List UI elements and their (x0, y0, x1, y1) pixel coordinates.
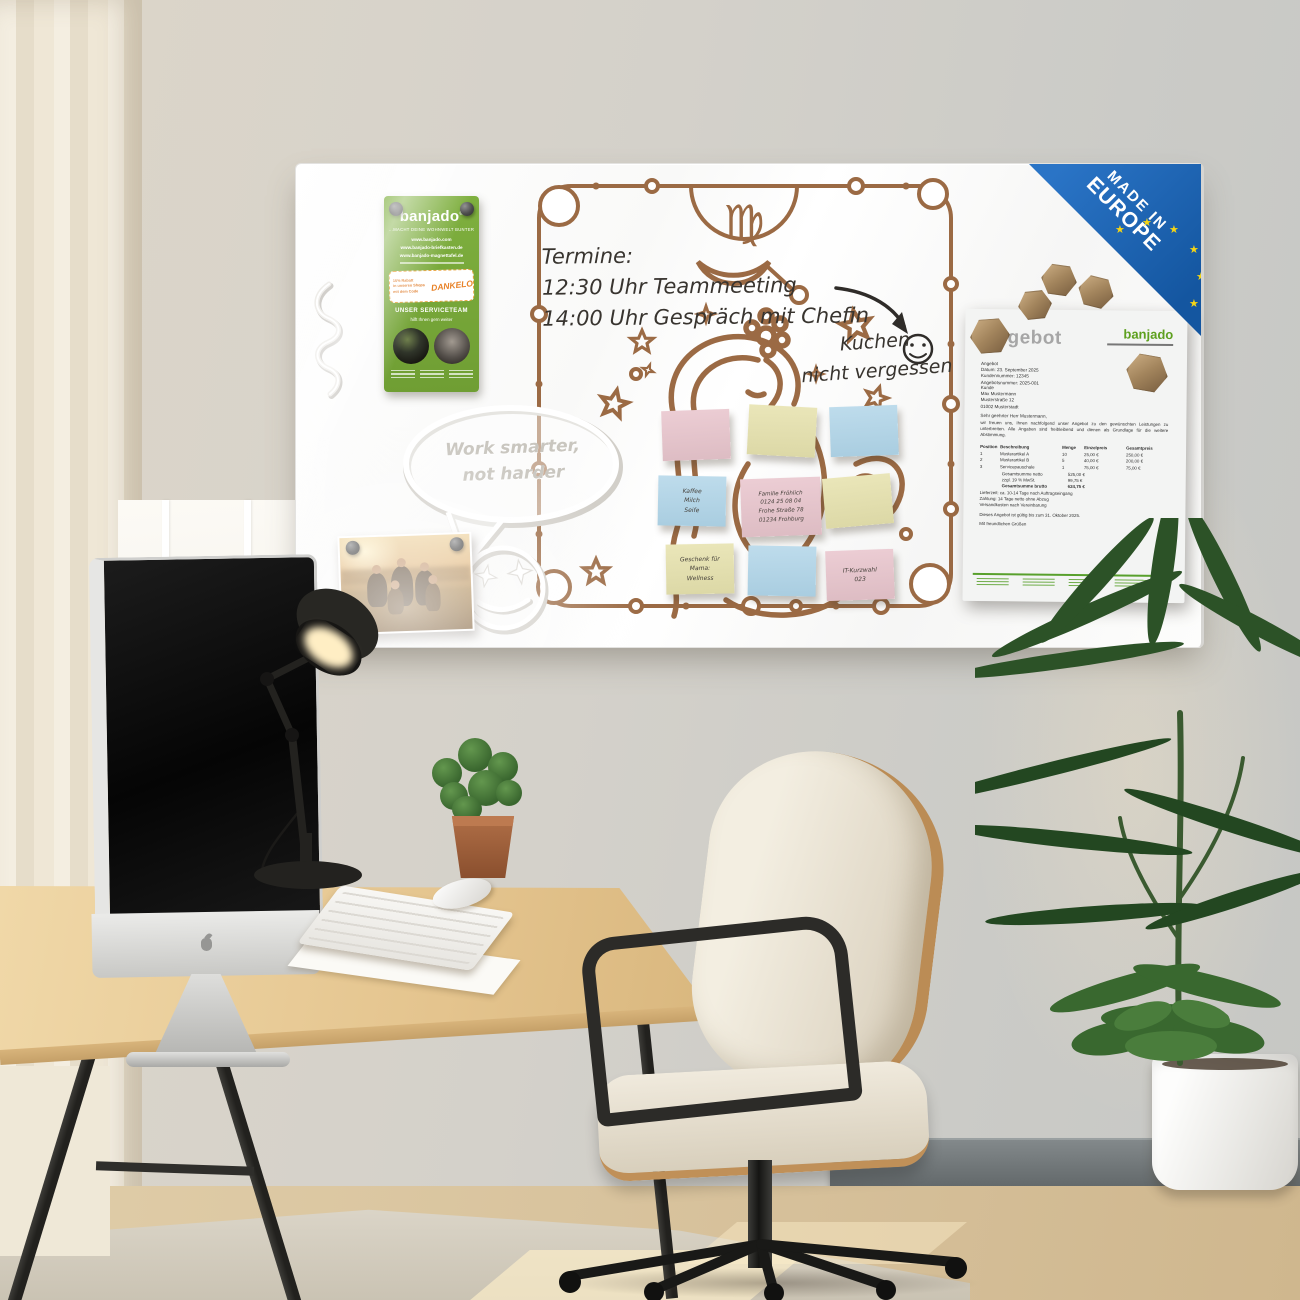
eu-star-icon: ★ (1196, 270, 1206, 283)
apple-logo-icon (200, 937, 211, 950)
white-smiley-star-eyes-icon (463, 548, 545, 631)
monitor-foot (126, 1052, 290, 1067)
terracotta-pot (446, 816, 520, 878)
handwritten-reminder: Kuchen nicht vergessen (794, 322, 958, 392)
dog-photo (393, 328, 429, 364)
service-title: UNSER SERVICETEAM (384, 308, 479, 314)
flyer-fine-print (400, 262, 464, 264)
flyer-footer-text (392, 370, 471, 378)
sticky-note-it: IT-Kurzwahl 023 (825, 549, 895, 601)
speech-bubble-text: Work smarter, not harder (417, 433, 609, 491)
customer-address: Kunde Max Mustermann Musterstraße 12 010… (980, 385, 1018, 410)
room-scene: ♍ (0, 0, 1300, 1300)
sticky-note-blank (661, 409, 731, 461)
office-chair-base (556, 1226, 986, 1300)
handwritten-schedule: Termine: 12:30 Uhr Teammeeting 14:00 Uhr… (542, 238, 870, 335)
logo-address-line (1107, 343, 1173, 345)
flyer-url: www.banjado.com (384, 236, 479, 244)
sticky-note-blank (829, 405, 899, 457)
total-row: Gesamtsumme brutto624,75 € (1002, 483, 1142, 490)
flyer-promo-box: 15% Rabatt in unseren Shops mit dem Code… (389, 269, 475, 303)
banjado-flyer: banjado® ...MACHT DEINE WOHNWELT BUNTER … (384, 196, 479, 392)
offer-body-text: wir freuen uns, Ihnen nachfolgend unser … (980, 420, 1168, 440)
sticky-note-contact: Familie Fröhlich 0124 25 08 04 Frohe Str… (740, 477, 822, 538)
banjado-logo: banjado (1123, 327, 1173, 343)
round-magnet (460, 202, 474, 216)
eu-star-icon: ★ (1189, 297, 1199, 310)
eu-star-icon: ★ (1169, 223, 1179, 236)
floor-plant (975, 518, 1300, 1218)
sticky-note-shopping: Kaffee Milch Seife (658, 475, 727, 526)
promo-code: DANKELO (431, 278, 474, 293)
dog-photo (434, 328, 470, 364)
sticky-note-blank (822, 473, 894, 529)
round-magnet (389, 202, 403, 216)
lamp-shade (274, 575, 391, 689)
eu-star-icon: ★ (1115, 223, 1125, 236)
flyer-urls: www.banjado.com www.banjado-briefkasten.… (384, 236, 479, 259)
family-figure (425, 583, 441, 612)
offer-table: PositionBeschreibung MengeEinzelpreis Ge… (980, 444, 1172, 472)
desk-plant-foliage (458, 738, 492, 772)
sticky-note-gift: Geschenk für Mama: Wellness (666, 543, 735, 594)
offer-meta: Angebot Datum: 23. September 2025 Kunden… (981, 361, 1039, 386)
flyer-url: www.banjado-magnettafel.de (384, 252, 479, 260)
office-chair-armrest (579, 913, 863, 1128)
promo-text: 15% Rabatt in unseren Shops mit dem Code (390, 278, 431, 296)
desk-plant-foliage (496, 780, 522, 806)
service-subtitle: hilft Ihnen gern weiter (384, 317, 479, 322)
eu-star-icon: ★ (1142, 216, 1152, 229)
flyer-tagline: ...MACHT DEINE WOHNWELT BUNTER (384, 227, 479, 232)
sticky-note-blank (748, 545, 817, 596)
flyer-url: www.banjado-briefkasten.de (384, 244, 479, 252)
offer-terms: Lieferzeit: ca. 10-14 Tage nach Auftrags… (979, 490, 1072, 509)
eu-star-icon: ★ (1189, 243, 1199, 256)
salutation: Sehr geehrter Herr Mustermann, (980, 413, 1046, 420)
sticky-note-blank (747, 404, 818, 457)
offer-totals: Gesamtsumme netto525,00 € zzgl. 19 % MwS… (1002, 471, 1142, 490)
white-marker-squiggle (317, 284, 340, 396)
monitor-stand (154, 974, 258, 1056)
